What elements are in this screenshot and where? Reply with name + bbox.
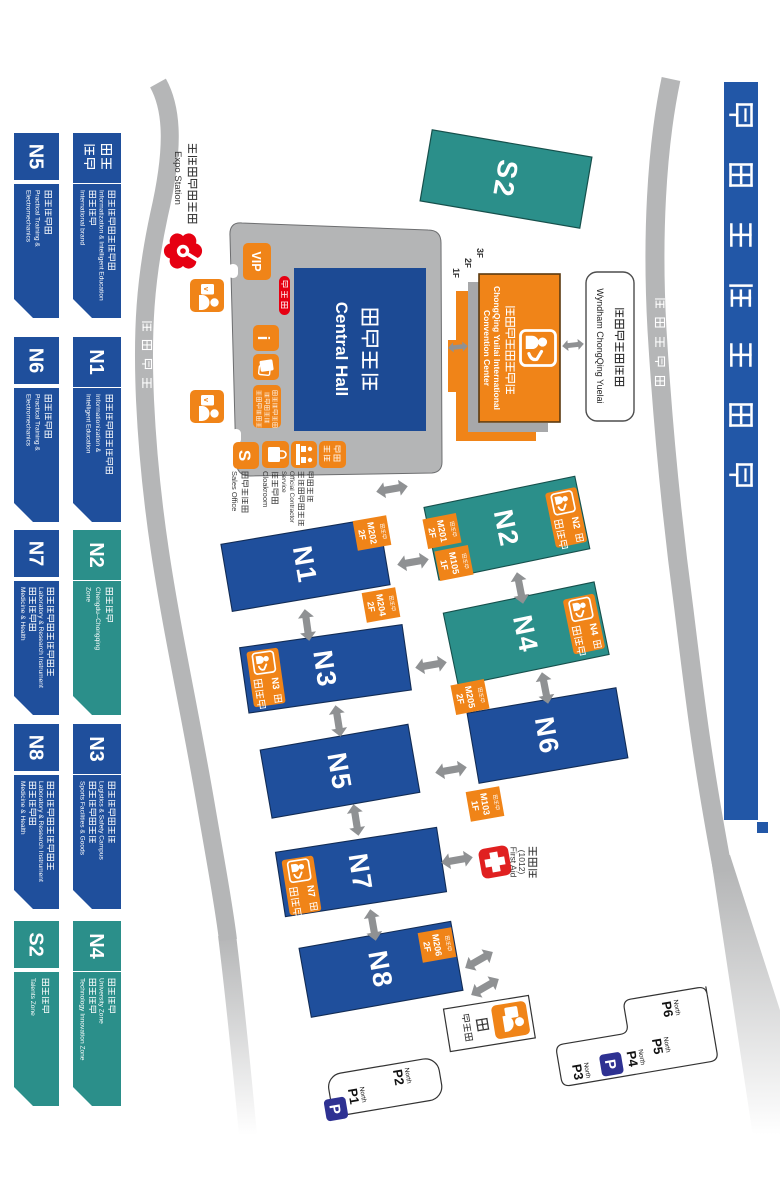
svg-text:N1: N1 <box>287 544 323 586</box>
svg-text:2F: 2F <box>463 258 473 268</box>
svg-text:International brand: International brand <box>79 190 86 245</box>
svg-text:N4: N4 <box>85 933 107 959</box>
svg-text:Central Hall: Central Hall <box>332 302 351 396</box>
svg-text:Expo Station: Expo Station <box>172 151 183 205</box>
svg-text:Official Contractor: Official Contractor <box>288 471 295 524</box>
svg-text:S2: S2 <box>25 932 47 956</box>
svg-text:v: v <box>202 398 209 402</box>
svg-text:VIP: VIP <box>249 251 263 271</box>
svg-text:Intelligent Education: Intelligent Education <box>84 394 91 454</box>
svg-text:N6: N6 <box>25 348 47 374</box>
svg-text:Practical Training &: Practical Training & <box>34 190 41 247</box>
svg-text:Medicine & Health: Medicine & Health <box>19 587 26 641</box>
svg-text:Technology Innovation Zone: Technology Innovation Zone <box>79 978 86 1061</box>
svg-text:N1: N1 <box>85 349 107 375</box>
svg-text:P6: P6 <box>659 1000 676 1018</box>
svg-text:Informatization & Intelligent: Informatization & Intelligent Education <box>97 190 104 301</box>
svg-text:N3: N3 <box>307 648 342 689</box>
svg-text:Convention Center: Convention Center <box>482 310 492 387</box>
svg-text:N7: N7 <box>25 541 47 567</box>
svg-text:S: S <box>235 450 254 461</box>
svg-text:N5: N5 <box>321 750 357 792</box>
svg-text:Medicine & Health: Medicine & Health <box>19 781 26 835</box>
svg-text:First Aid: First Aid <box>509 847 519 878</box>
svg-text:N3: N3 <box>269 677 282 691</box>
svg-text:i: i <box>254 336 273 341</box>
svg-text:v: v <box>202 287 209 291</box>
svg-text:Service: Service <box>280 471 287 493</box>
svg-text:Electromechanics: Electromechanics <box>25 394 32 447</box>
svg-text:P5: P5 <box>649 1037 666 1055</box>
svg-text:Chengdu--Chongqing: Chengdu--Chongqing <box>94 587 101 650</box>
svg-text:Talents Zone: Talents Zone <box>29 978 36 1016</box>
svg-text:N3: N3 <box>85 736 107 762</box>
svg-text:1F: 1F <box>451 268 461 278</box>
svg-text:Wyndham ChongQing Yuelai: Wyndham ChongQing Yuelai <box>595 288 605 403</box>
svg-text:3F: 3F <box>475 248 485 258</box>
svg-text:P3: P3 <box>569 1063 586 1081</box>
svg-text:Sports Facilities & Goods: Sports Facilities & Goods <box>79 781 86 856</box>
svg-text:S2: S2 <box>487 157 524 200</box>
svg-text:Zone: Zone <box>84 587 91 602</box>
svg-text:P4: P4 <box>624 1050 642 1069</box>
svg-text:N5: N5 <box>25 144 47 170</box>
svg-text:Laboratory & Research Instrume: Laboratory & Research Instrument <box>37 587 44 688</box>
svg-text:Practical Training &: Practical Training & <box>34 394 41 451</box>
svg-text:Sales Office: Sales Office <box>230 471 239 511</box>
svg-text:N8: N8 <box>25 735 47 761</box>
svg-text:Cloakroom: Cloakroom <box>261 471 270 507</box>
svg-text:Logistics & Safety Campus: Logistics & Safety Campus <box>97 781 104 860</box>
svg-text:N7: N7 <box>343 851 378 893</box>
svg-text:N6: N6 <box>529 715 565 757</box>
svg-text:Electromechanics: Electromechanics <box>25 190 32 243</box>
svg-text:N2: N2 <box>85 542 107 568</box>
svg-text:Laboratory & Research Instrume: Laboratory & Research Instrument <box>37 781 44 882</box>
svg-text:N7: N7 <box>304 884 317 898</box>
svg-text:Informationization &: Informationization & <box>94 394 101 453</box>
svg-text:ChongQing Yuilai International: ChongQing Yuilai International <box>492 286 502 410</box>
svg-text:University Zone: University Zone <box>97 978 104 1024</box>
svg-text:P2: P2 <box>390 1068 407 1086</box>
svg-text:P1: P1 <box>345 1087 362 1105</box>
